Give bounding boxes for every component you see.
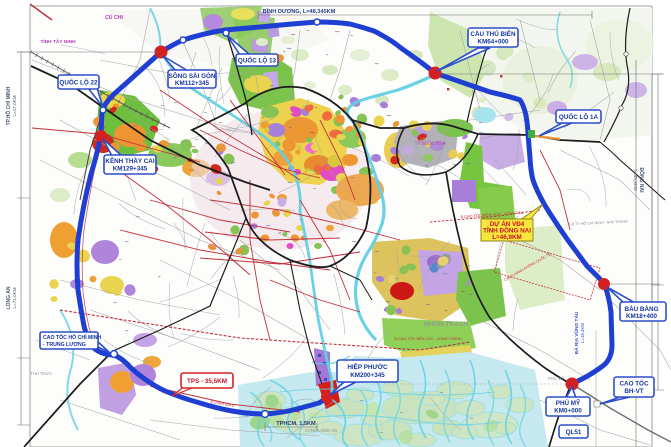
svg-text:L=45,9KM: L=45,9KM — [633, 169, 638, 190]
svg-text:KM0+000: KM0+000 — [554, 408, 582, 415]
svg-text:CẢNG LONG AN: CẢNG LONG AN — [305, 428, 337, 433]
svg-text:TP.HỒ CHÍ MINH: TP.HỒ CHÍ MINH — [4, 86, 12, 125]
svg-text:CAO TỐC HỒ CHÍ MINH: CAO TỐC HỒ CHÍ MINH — [43, 333, 101, 341]
svg-text:KM129+345: KM129+345 — [113, 166, 148, 173]
svg-text:- TRUNG LƯƠNG: - TRUNG LƯƠNG — [43, 342, 86, 348]
svg-text:BÌNH DƯƠNG, L=48,345KM: BÌNH DƯƠNG, L=48,345KM — [263, 7, 336, 15]
svg-text:BÀ RỊA VŨNG TÀU: BÀ RỊA VŨNG TÀU — [573, 311, 580, 354]
svg-text:L=17,0KM: L=17,0KM — [12, 95, 17, 116]
svg-text:TỈNH TÂY NINH: TỈNH TÂY NINH — [40, 38, 76, 45]
svg-text:KM18+400: KM18+400 — [626, 313, 657, 320]
svg-text:NHƠN TRẠCH: NHƠN TRẠCH — [424, 321, 468, 328]
svg-text:KM112+345: KM112+345 — [175, 80, 210, 87]
svg-text:ĐỒNG NAI: ĐỒNG NAI — [638, 168, 645, 194]
svg-text:PHÚ MỸ: PHÚ MỸ — [548, 376, 564, 381]
svg-text:HIỆP PHƯỚC: HIỆP PHƯỚC — [347, 362, 388, 371]
svg-text:TPS - 35,5KM: TPS - 35,5KM — [187, 378, 227, 385]
svg-text:PHÚ MỸ: PHÚ MỸ — [556, 398, 581, 407]
svg-text:Đ.CAO TỐC BẾN LỨC - LONG THÀNH: Đ.CAO TỐC BẾN LỨC - LONG THÀNH — [394, 336, 461, 341]
svg-text:SÔNG SÀI GÒN: SÔNG SÀI GÒN — [169, 71, 216, 80]
svg-text:BÀU BÀNG: BÀU BÀNG — [625, 304, 659, 313]
svg-text:KM200+345: KM200+345 — [350, 372, 385, 379]
svg-text:TPHCM, 1,5KM: TPHCM, 1,5KM — [276, 421, 316, 427]
svg-text:BH-VT: BH-VT — [624, 388, 643, 395]
svg-text:TP.BIÊN HÒA: TP.BIÊN HÒA — [414, 139, 446, 147]
svg-text:KM64+000: KM64+000 — [478, 39, 509, 46]
svg-text:THỦ THỪA: THỦ THỪA — [30, 371, 52, 376]
svg-text:L=71,0KM: L=71,0KM — [12, 287, 17, 308]
svg-text:CỦ CHI: CỦ CHI — [105, 14, 123, 21]
svg-text:L=18,4KM: L=18,4KM — [580, 323, 585, 343]
svg-text:L=46,9KM: L=46,9KM — [492, 234, 522, 241]
svg-text:QL51: QL51 — [566, 429, 582, 436]
